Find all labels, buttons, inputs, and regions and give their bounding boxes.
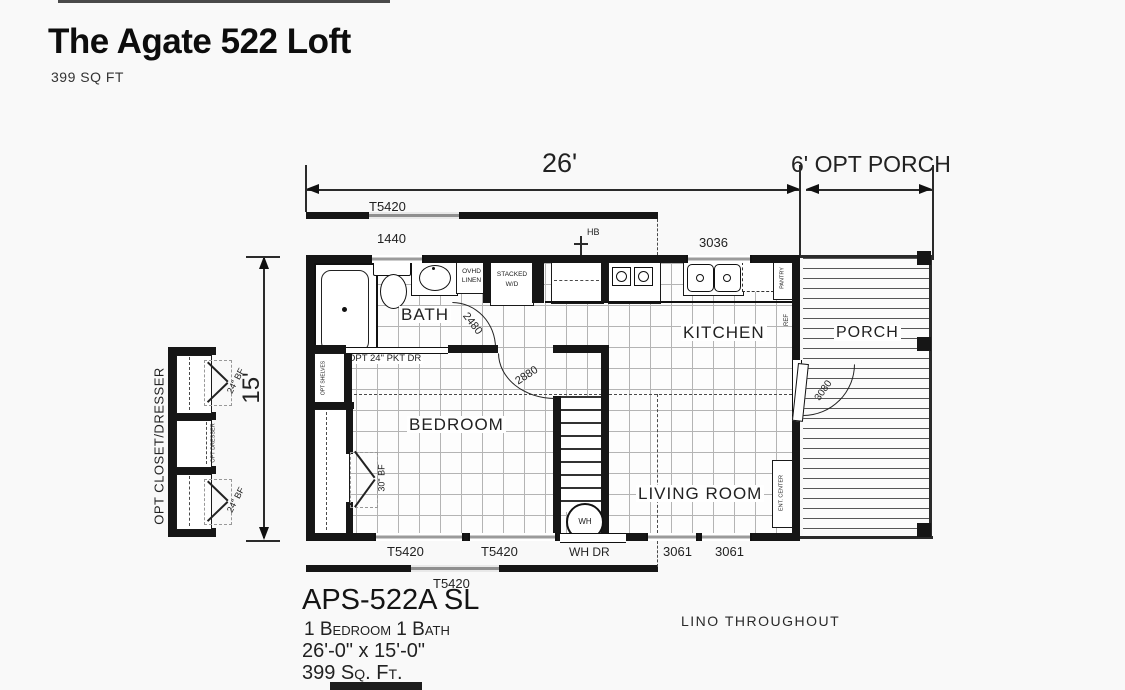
pantry-label: PANTRY	[780, 265, 786, 291]
exterior-wall-left	[306, 255, 314, 541]
base-cabinet	[551, 261, 604, 304]
loft-edge-dash	[657, 219, 658, 255]
dim-tick	[246, 256, 280, 258]
plan-area: 399 Sq. Ft.	[300, 663, 405, 683]
bifold-30-label: 30" BF	[378, 462, 387, 493]
dresser-dash	[206, 422, 207, 464]
opt-shelves-label: OPT SHELVES	[322, 359, 327, 397]
porch-post	[917, 337, 931, 351]
window-t5420-b-label: T5420	[479, 545, 520, 558]
bath-south-wall	[448, 345, 498, 353]
loft-edge-dash	[657, 541, 658, 567]
window-t5420-a-label: T5420	[385, 545, 426, 558]
room-label-porch: PORCH	[834, 325, 901, 341]
stacked-wd-label-1: STACKED	[491, 271, 533, 278]
sink-drain	[696, 274, 704, 282]
stair-head-wall	[553, 345, 609, 353]
hose-bib-cross	[574, 243, 588, 245]
room-label-living: LIVING ROOM	[636, 485, 764, 502]
stacked-wd-label-2: W/D	[491, 281, 533, 288]
dim-arrow	[806, 184, 819, 194]
dim-porch-label: 6' OPT PORCH	[789, 153, 953, 176]
shower-drain	[342, 307, 347, 312]
window-t5420-a	[374, 533, 464, 541]
sink-basin	[419, 265, 451, 291]
sink-faucet-dot	[432, 267, 435, 270]
dim-tick	[932, 165, 934, 260]
counter-front-edge	[545, 301, 792, 303]
window-3061-a	[646, 533, 698, 541]
hose-bib-label: HB	[585, 228, 602, 237]
flooring-note: LINO THROUGHOUT	[679, 614, 842, 628]
dim-tick	[799, 165, 801, 257]
stair-wall-left	[553, 396, 561, 533]
pocket-door-label: OPT 24" PKT DR	[346, 354, 423, 364]
dim-width-label: 26'	[540, 150, 579, 177]
interior-wall	[601, 255, 608, 302]
overhead-linen-label-2: LINEN	[457, 277, 486, 284]
wh-door-opening	[560, 533, 626, 543]
window-3061-b-label: 3061	[713, 545, 746, 558]
sink-drain	[723, 274, 731, 282]
staircase	[561, 396, 601, 512]
loft-bottom-window	[410, 565, 500, 572]
porch-edge-bottom	[800, 536, 933, 539]
refrigerator-dashed	[742, 262, 774, 292]
burner-ring	[638, 271, 649, 282]
plan-size: 26'-0" x 15'-0"	[300, 641, 427, 661]
cabinet-dash	[554, 280, 599, 281]
overhead-linen-label-1: OVHD	[457, 268, 486, 275]
window-3061-b	[700, 533, 752, 541]
opt-closet-wall	[168, 347, 176, 537]
dim-tick	[305, 165, 307, 212]
porch-post	[917, 523, 931, 537]
hose-bib-tick	[580, 236, 582, 256]
burner-ring	[616, 271, 627, 282]
dim-arrow	[306, 184, 319, 194]
closet-rod-dash	[189, 476, 190, 526]
interior-wall	[483, 255, 491, 303]
room-label-bedroom: BEDROOM	[407, 416, 506, 433]
bedroom-closet	[314, 409, 350, 535]
linen-closet	[314, 353, 348, 405]
closet-wall-seg	[346, 409, 353, 454]
page-title: The Agate 522 Loft	[46, 24, 353, 59]
dim-arrow	[259, 527, 269, 540]
ref-label: REF	[784, 312, 790, 328]
dim-tick	[246, 540, 280, 542]
opt-closet-dresser-label: OPT CLOSET/DRESSER	[153, 365, 166, 527]
model-number: APS-522A SL	[300, 586, 481, 615]
dim-width-line	[306, 189, 801, 191]
window-3036-label: 3036	[697, 236, 730, 249]
wh-door-label: WH DR	[567, 546, 612, 558]
page-subtitle: 399 SQ FT	[49, 70, 126, 84]
porch-post	[917, 251, 931, 265]
dim-porch-line	[806, 189, 933, 191]
floor-plan-sheet: The Agate 522 Loft 399 SQ FT 26' 6' OPT …	[0, 0, 1125, 690]
closet-wall	[344, 353, 352, 403]
porch-edge-top	[800, 255, 933, 258]
loft-overhang-dash-v	[657, 394, 658, 533]
window-1440-label: 1440	[375, 232, 408, 245]
interior-wall	[532, 255, 544, 303]
stair-wall-right	[601, 352, 609, 533]
beds-baths: 1 Bedroom 1 Bath	[302, 620, 452, 639]
loft-top-window	[368, 212, 460, 219]
water-heater-label: WH	[568, 517, 602, 526]
porch-edge-right	[929, 255, 932, 539]
bath-south-wall	[306, 345, 346, 353]
stacked-washer-dryer: STACKED W/D	[490, 258, 534, 306]
toilet-bowl	[380, 274, 407, 309]
closet-rod-dash	[326, 412, 327, 530]
dim-arrow	[919, 184, 932, 194]
loft-top-line	[306, 212, 658, 219]
closet-rod-dash	[189, 357, 190, 410]
photo-edge-line-top	[58, 0, 390, 3]
window-3061-a-label: 3061	[661, 545, 694, 558]
opt-dresser-label: OPT DRESSER	[211, 421, 217, 464]
opt-closet-wall	[168, 347, 216, 355]
room-label-bath: BATH	[399, 306, 451, 323]
room-label-kitchen: KITCHEN	[681, 324, 767, 341]
window-t5420-b	[468, 533, 557, 541]
ent-center-label: ENT. CENTER	[779, 473, 785, 513]
window-3036	[686, 255, 752, 263]
window-1440	[370, 255, 424, 263]
